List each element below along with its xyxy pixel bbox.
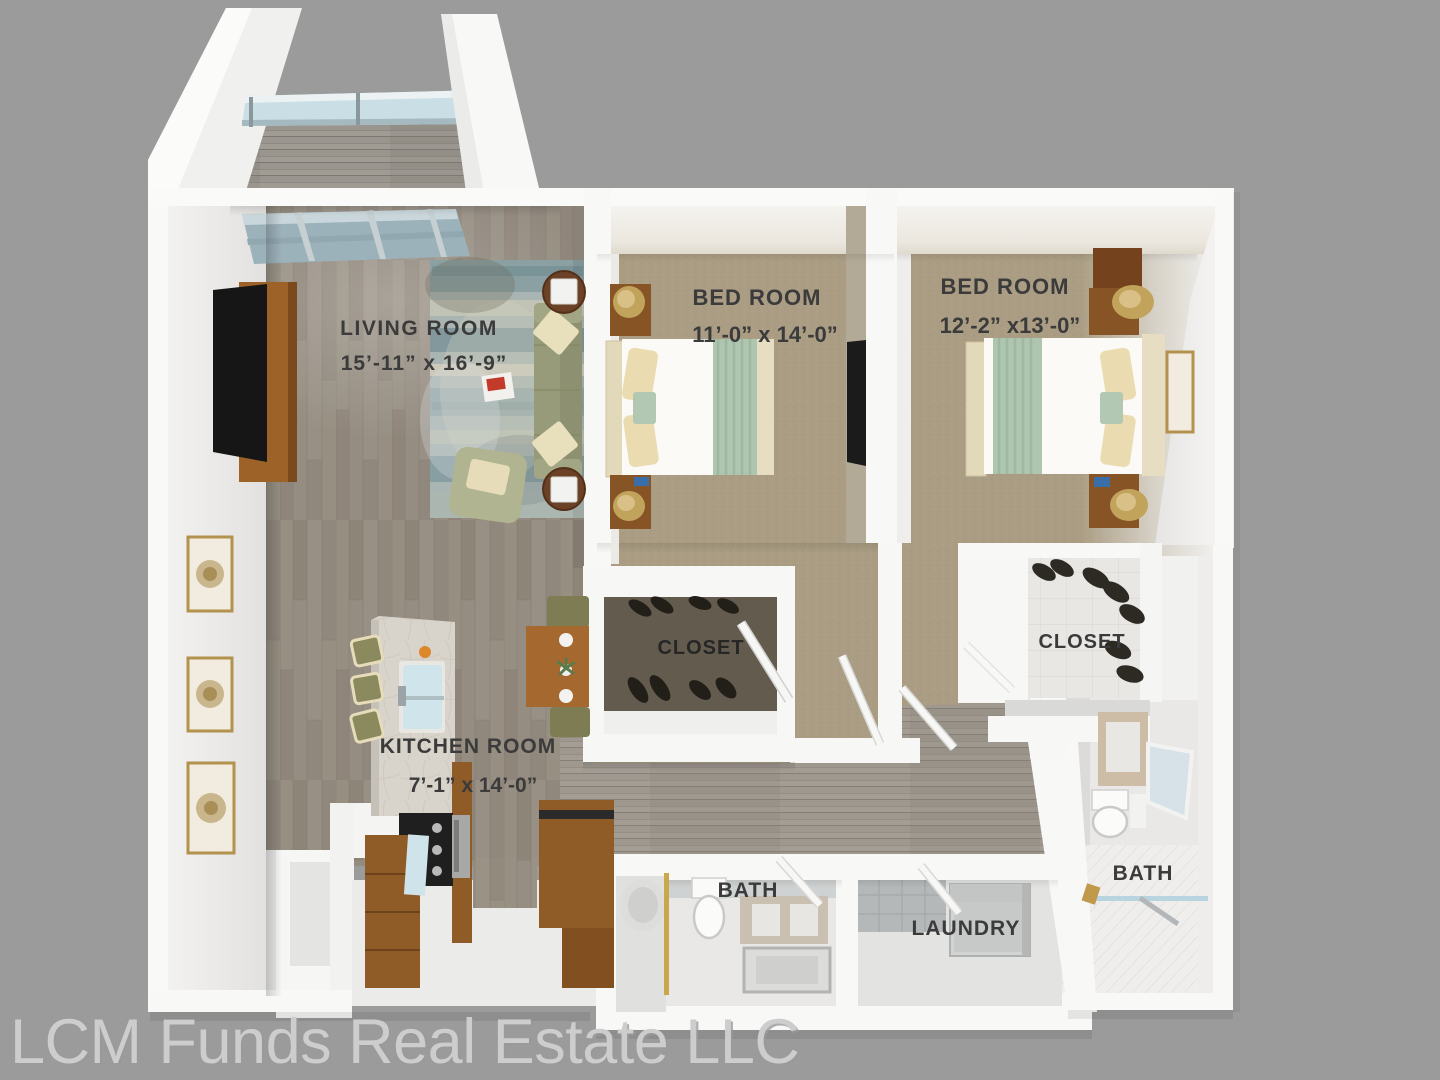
svg-text:BED ROOM: BED ROOM xyxy=(693,285,822,310)
svg-text:12’-2” x13’-0”: 12’-2” x13’-0” xyxy=(940,313,1081,338)
svg-text:LAUNDRY: LAUNDRY xyxy=(912,917,1021,940)
svg-text:11’-0” x 14’-0”: 11’-0” x 14’-0” xyxy=(692,322,838,347)
svg-text:15’-11” x 16’-9”: 15’-11” x 16’-9” xyxy=(341,352,508,375)
svg-text:7’-1” x 14’-0”: 7’-1” x 14’-0” xyxy=(409,774,537,797)
svg-text:BED ROOM: BED ROOM xyxy=(941,274,1070,299)
svg-text:LCM Funds Real Estate LLC: LCM Funds Real Estate LLC xyxy=(10,1007,799,1077)
svg-text:BATH: BATH xyxy=(718,879,779,902)
svg-text:KITCHEN ROOM: KITCHEN ROOM xyxy=(380,735,557,758)
svg-text:CLOSET: CLOSET xyxy=(1038,631,1125,653)
svg-text:BATH: BATH xyxy=(1113,862,1174,885)
svg-text:LIVING ROOM: LIVING ROOM xyxy=(340,317,498,340)
svg-text:CLOSET: CLOSET xyxy=(657,637,744,659)
